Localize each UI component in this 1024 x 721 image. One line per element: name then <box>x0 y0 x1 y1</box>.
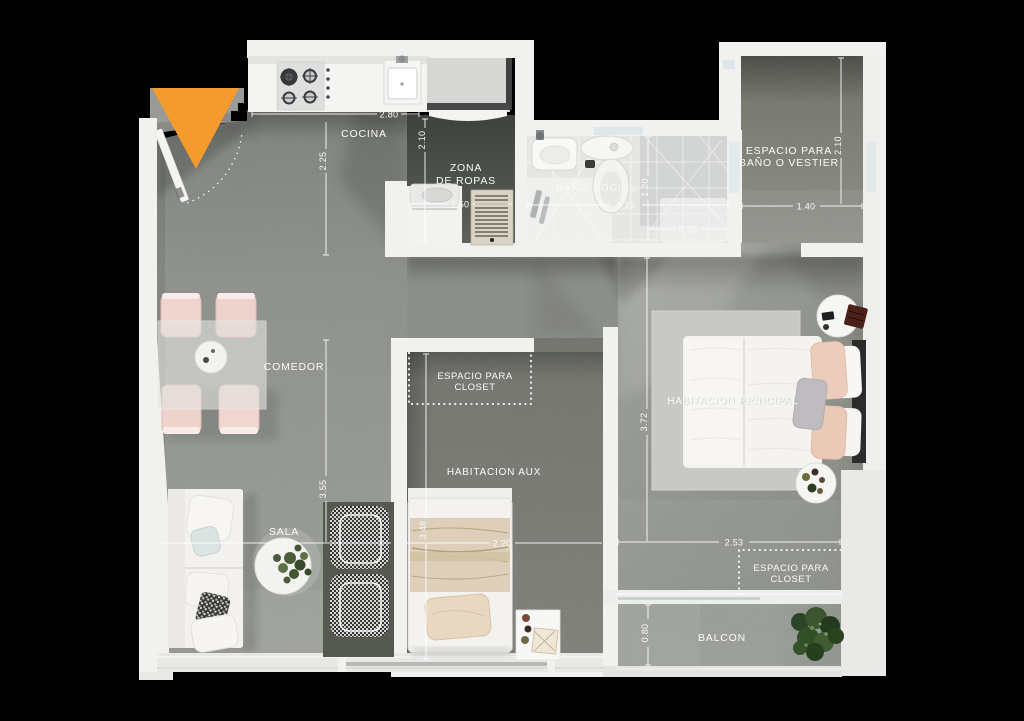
svg-text:COMEDOR: COMEDOR <box>264 361 324 373</box>
svg-text:3.55: 3.55 <box>318 480 328 499</box>
svg-text:1.50: 1.50 <box>451 200 470 210</box>
svg-text:0.80: 0.80 <box>640 624 650 643</box>
svg-text:1.20: 1.20 <box>640 178 650 197</box>
svg-text:ESPACIO PARA: ESPACIO PARA <box>746 145 832 157</box>
svg-text:BALCON: BALCON <box>698 632 746 644</box>
svg-text:2.10: 2.10 <box>833 136 843 155</box>
svg-text:COCINA: COCINA <box>341 128 387 140</box>
svg-text:ESPACIO PARA: ESPACIO PARA <box>437 371 512 382</box>
svg-text:1.40: 1.40 <box>797 202 816 212</box>
svg-text:HABITACION PRINCIPAL: HABITACION PRINCIPAL <box>667 396 798 407</box>
svg-text:BAÑO O VESTIER: BAÑO O VESTIER <box>739 156 839 169</box>
svg-text:BAÑO SOCIAL: BAÑO SOCIAL <box>556 181 636 194</box>
svg-text:CLOSET: CLOSET <box>770 574 811 585</box>
svg-text:3.72: 3.72 <box>639 413 649 432</box>
svg-text:HABITACION AUX: HABITACION AUX <box>447 467 541 478</box>
svg-text:3.48: 3.48 <box>418 521 428 540</box>
svg-text:2.25: 2.25 <box>318 152 328 171</box>
svg-text:SALA: SALA <box>269 526 299 538</box>
svg-text:2.20: 2.20 <box>493 539 512 549</box>
svg-text:2.53: 2.53 <box>725 538 744 548</box>
svg-text:ESPACIO PARA: ESPACIO PARA <box>753 563 828 574</box>
svg-text:2.80: 2.80 <box>380 110 399 120</box>
svg-text:2.25: 2.25 <box>617 201 636 211</box>
svg-text:CLOSET: CLOSET <box>454 382 495 393</box>
svg-text:DE ROPAS: DE ROPAS <box>436 175 496 187</box>
svg-text:2.10: 2.10 <box>417 131 427 150</box>
svg-text:0.95: 0.95 <box>679 225 698 235</box>
svg-text:ZONA: ZONA <box>450 162 482 174</box>
svg-text:2.52: 2.52 <box>275 539 294 549</box>
